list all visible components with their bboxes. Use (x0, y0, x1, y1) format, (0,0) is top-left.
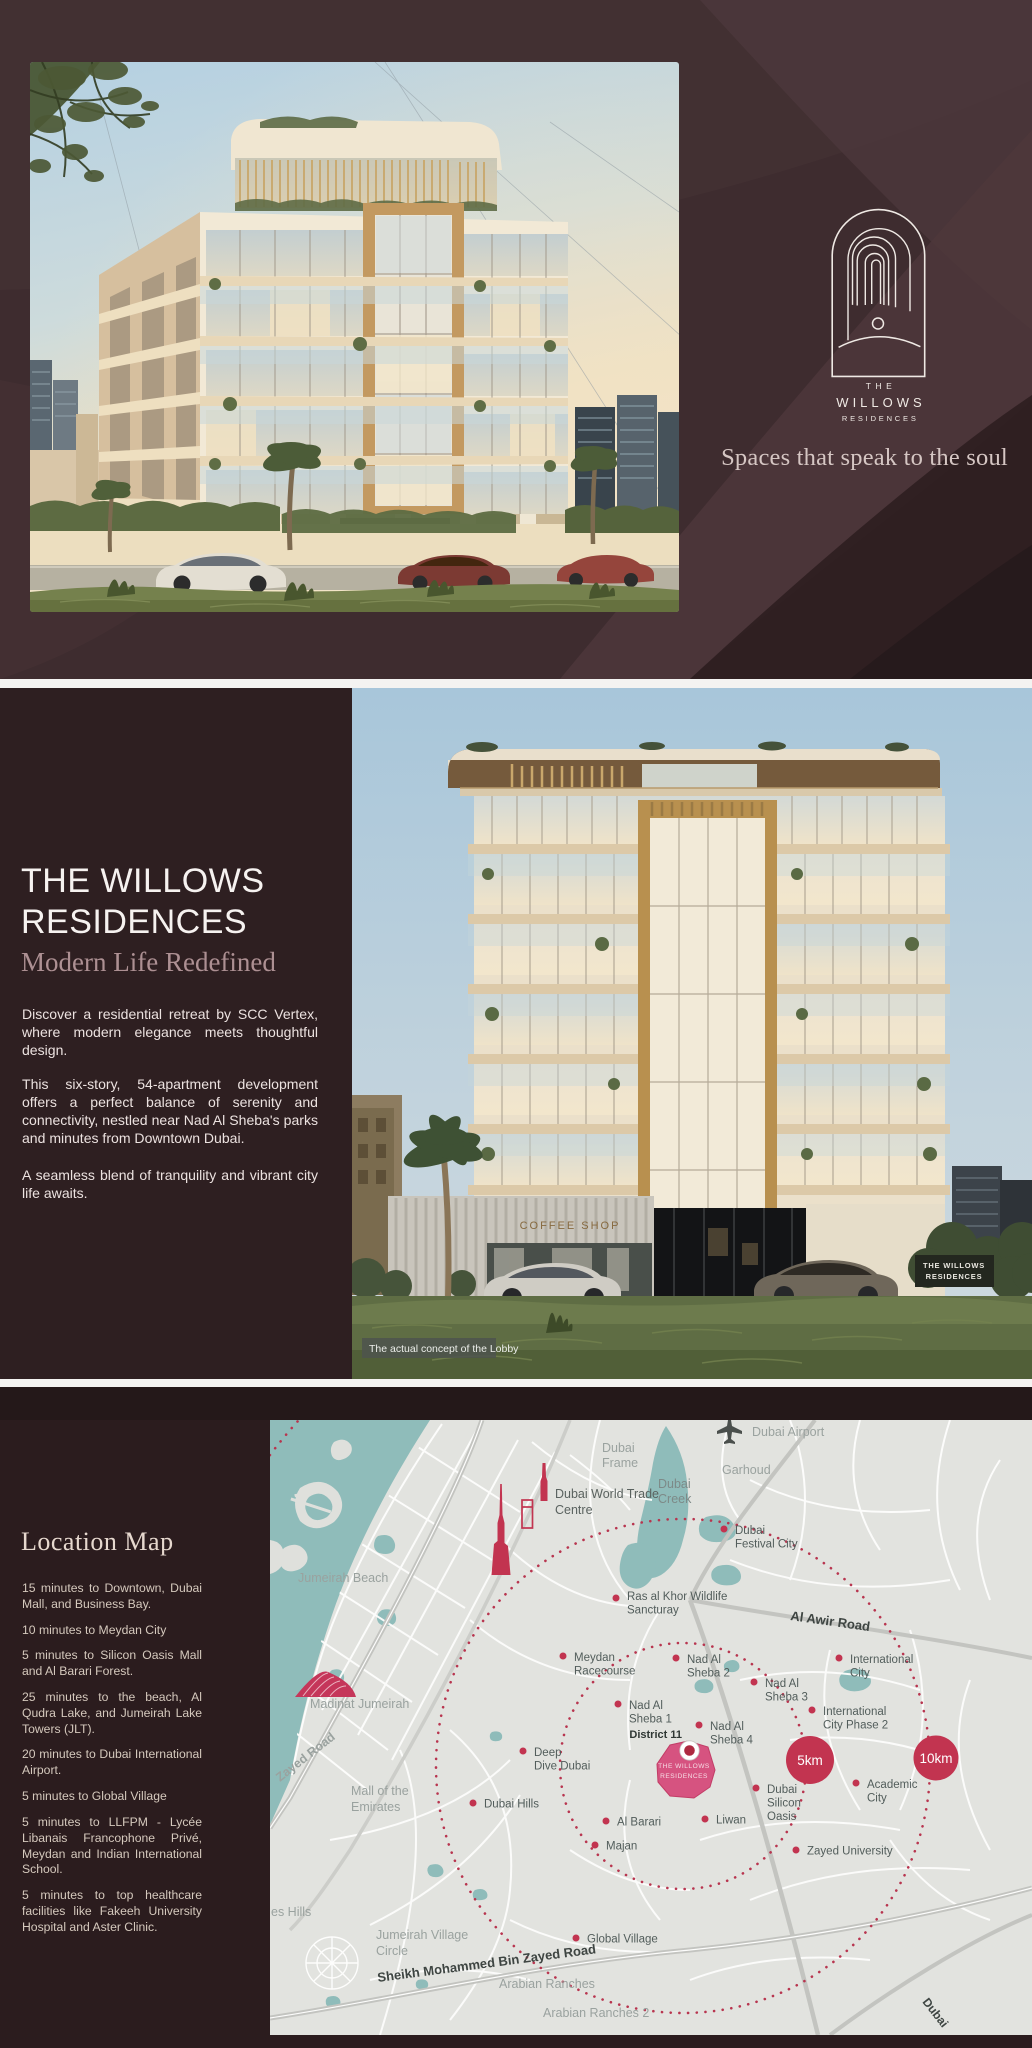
svg-text:Dubai Hills: Dubai Hills (484, 1799, 539, 1811)
svg-text:Creek: Creek (658, 1492, 692, 1506)
svg-text:International: International (823, 1706, 886, 1718)
svg-text:Jumeirah Village: Jumeirah Village (376, 1928, 468, 1942)
svg-text:THE WILLOWS: THE WILLOWS (923, 1261, 985, 1270)
svg-text:Dubai: Dubai (767, 1784, 797, 1796)
svg-text:Dubai Airport: Dubai Airport (752, 1425, 825, 1439)
svg-text:Sheba 1: Sheba 1 (629, 1714, 672, 1726)
svg-text:Liwan: Liwan (716, 1815, 746, 1827)
svg-text:Madinat Jumeirah: Madinat Jumeirah (310, 1697, 409, 1711)
svg-text:International: International (850, 1654, 913, 1666)
svg-text:The actual concept of the Lobb: The actual concept of the Lobby (369, 1343, 519, 1355)
svg-text:RESIDENCES: RESIDENCES (660, 1773, 708, 1780)
svg-text:Garhoud: Garhoud (722, 1463, 771, 1477)
svg-text:Deep: Deep (534, 1747, 562, 1759)
svg-text:Circle: Circle (376, 1944, 408, 1958)
svg-text:Emirates: Emirates (351, 1800, 400, 1814)
svg-text:Academic: Academic (867, 1779, 918, 1791)
svg-text:COFFEE SHOP: COFFEE SHOP (520, 1220, 621, 1232)
svg-text:Ras al Khor Wildlife: Ras al Khor Wildlife (627, 1591, 727, 1603)
svg-text:Frame: Frame (602, 1456, 638, 1470)
svg-text:Dubai World Trade: Dubai World Trade (555, 1487, 659, 1501)
svg-text:Festival City: Festival City (735, 1539, 798, 1551)
svg-text:Global Village: Global Village (587, 1934, 658, 1946)
svg-text:Sheba 3: Sheba 3 (765, 1692, 808, 1704)
svg-text:Meydan: Meydan (574, 1652, 615, 1664)
svg-text:Arabian Ranches 2: Arabian Ranches 2 (543, 2006, 649, 2020)
svg-text:Dive Dubai: Dive Dubai (534, 1761, 590, 1773)
svg-text:Sancturay: Sancturay (627, 1605, 679, 1617)
svg-text:Jumeirah Beach: Jumeirah Beach (298, 1571, 388, 1585)
svg-text:Mall of the: Mall of the (351, 1784, 409, 1798)
svg-text:City: City (850, 1668, 870, 1680)
svg-text:Nad Al: Nad Al (765, 1678, 799, 1690)
svg-text:Dubai: Dubai (602, 1441, 635, 1455)
svg-text:Nad Al: Nad Al (687, 1654, 721, 1666)
svg-text:District 11: District 11 (629, 1729, 682, 1741)
svg-text:Silicon: Silicon (767, 1798, 801, 1810)
svg-text:Oasis: Oasis (767, 1811, 797, 1823)
svg-text:Dubai: Dubai (658, 1477, 691, 1491)
svg-text:Sheba 4: Sheba 4 (710, 1735, 753, 1747)
svg-text:10km: 10km (919, 1751, 952, 1766)
svg-text:5km: 5km (797, 1753, 823, 1768)
svg-text:Zayed University: Zayed University (807, 1846, 893, 1858)
svg-text:Majan: Majan (606, 1841, 637, 1853)
svg-text:Al Barari: Al Barari (617, 1817, 661, 1829)
svg-text:Nad Al: Nad Al (629, 1700, 663, 1712)
svg-text:Sheba 2: Sheba 2 (687, 1668, 730, 1680)
svg-text:Centre: Centre (555, 1503, 593, 1517)
svg-text:Dubai: Dubai (735, 1525, 765, 1537)
svg-text:City Phase 2: City Phase 2 (823, 1720, 888, 1732)
svg-text:es Hills: es Hills (271, 1905, 311, 1919)
svg-text:Nad Al: Nad Al (710, 1721, 744, 1733)
svg-text:City: City (867, 1793, 887, 1805)
svg-text:THE WILLOWS: THE WILLOWS (658, 1763, 710, 1770)
svg-text:Racecourse: Racecourse (574, 1666, 635, 1678)
svg-text:RESIDENCES: RESIDENCES (926, 1272, 983, 1281)
svg-text:Arabian Ranches: Arabian Ranches (499, 1977, 595, 1991)
